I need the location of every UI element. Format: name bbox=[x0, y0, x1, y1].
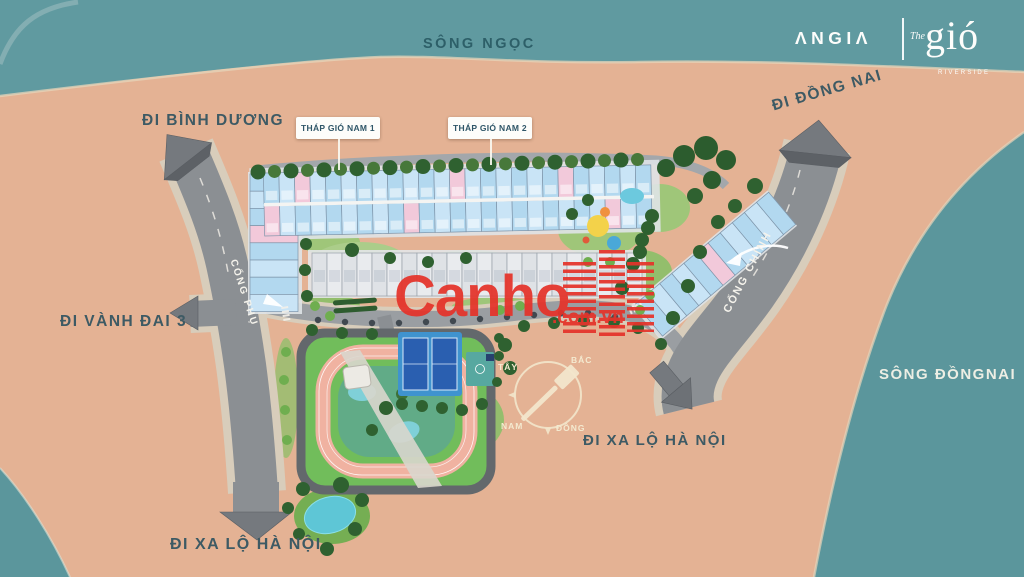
building-unit bbox=[591, 184, 603, 194]
tree bbox=[703, 171, 721, 189]
building-unit bbox=[375, 221, 387, 230]
tree bbox=[301, 290, 313, 302]
building-unit bbox=[359, 189, 371, 199]
tree bbox=[499, 157, 512, 170]
building-unit bbox=[545, 185, 557, 195]
tree bbox=[673, 145, 695, 167]
building-unit bbox=[623, 216, 635, 225]
marker-dot bbox=[315, 317, 321, 323]
tree bbox=[300, 238, 312, 250]
building-unit bbox=[452, 219, 464, 228]
river-right-label: SÔNG ĐỒNGNAI bbox=[879, 366, 1016, 383]
bush bbox=[310, 301, 320, 311]
tree bbox=[598, 154, 611, 167]
building-unit bbox=[576, 217, 588, 226]
tree bbox=[320, 542, 334, 556]
building-unit bbox=[297, 190, 309, 200]
tower-label-nam-2-text: THÁP GIÓ NAM 2 bbox=[453, 123, 527, 133]
building-unit bbox=[499, 218, 511, 227]
building-unit bbox=[359, 270, 370, 282]
tree bbox=[614, 153, 629, 168]
angia-logo-text: ΛNGIΛ bbox=[795, 28, 872, 49]
tree bbox=[515, 156, 530, 171]
tree bbox=[345, 243, 359, 257]
bush bbox=[281, 347, 291, 357]
building-unit bbox=[266, 223, 278, 232]
tree bbox=[296, 482, 310, 496]
building-unit bbox=[421, 220, 433, 229]
building-unit bbox=[390, 221, 402, 230]
building-unit bbox=[312, 190, 324, 200]
building-unit bbox=[498, 186, 510, 196]
site-plan-map: SÔNG NGỌC SÔNG ĐỒNGNAI ĐI BÌNH DƯƠNG ĐI … bbox=[0, 0, 1024, 577]
building-unit bbox=[344, 221, 356, 230]
building-unit bbox=[560, 185, 572, 195]
building-unit bbox=[468, 219, 480, 228]
compass-south: NAM bbox=[501, 421, 523, 431]
tree bbox=[657, 159, 675, 177]
tower-label-leader-1 bbox=[338, 139, 340, 170]
tree bbox=[299, 264, 311, 276]
building-unit bbox=[359, 221, 371, 230]
building-unit bbox=[281, 190, 293, 200]
tree bbox=[301, 164, 314, 177]
building-unit bbox=[483, 219, 495, 228]
building-unit bbox=[344, 270, 355, 282]
building-unit bbox=[452, 187, 464, 197]
building-unit bbox=[250, 260, 298, 277]
tree bbox=[282, 502, 294, 514]
tree bbox=[693, 245, 707, 259]
building-unit bbox=[390, 188, 402, 198]
tree bbox=[641, 221, 655, 235]
building-unit bbox=[530, 218, 542, 227]
tree bbox=[284, 163, 299, 178]
tree bbox=[582, 194, 594, 206]
building-unit bbox=[250, 243, 298, 260]
direction-binh-duong: ĐI BÌNH DƯƠNG bbox=[142, 112, 284, 130]
bush bbox=[282, 435, 292, 445]
building-unit bbox=[467, 186, 479, 196]
building-unit bbox=[545, 217, 557, 226]
building-unit bbox=[328, 189, 340, 199]
tree bbox=[383, 160, 398, 175]
watermark-building-icon bbox=[599, 250, 625, 336]
project-logo-name: gió bbox=[925, 12, 979, 59]
tree bbox=[333, 477, 349, 493]
tree bbox=[268, 165, 281, 178]
building-unit bbox=[406, 220, 418, 229]
bush bbox=[325, 311, 335, 321]
tree bbox=[728, 199, 742, 213]
tower-label-nam-1-text: THÁP GIÓ NAM 1 bbox=[301, 123, 375, 133]
tree bbox=[251, 165, 266, 180]
tree bbox=[456, 404, 468, 416]
tree bbox=[336, 327, 348, 339]
tree bbox=[433, 160, 446, 173]
small-pool bbox=[620, 188, 644, 204]
tree bbox=[476, 398, 488, 410]
tree bbox=[348, 522, 362, 536]
building-unit bbox=[328, 222, 340, 231]
tree bbox=[396, 398, 408, 410]
building-unit bbox=[421, 187, 433, 197]
tree bbox=[334, 163, 347, 176]
tree bbox=[355, 493, 369, 507]
tree bbox=[566, 208, 578, 220]
building-unit bbox=[329, 270, 340, 282]
watermark-name: Canho bbox=[394, 263, 569, 330]
building-unit bbox=[374, 188, 386, 198]
tree bbox=[687, 188, 703, 204]
tree bbox=[367, 162, 380, 175]
tree bbox=[482, 157, 497, 172]
tree bbox=[494, 351, 504, 361]
building-unit bbox=[250, 277, 298, 294]
watermark: Canho .com.vn bbox=[380, 245, 670, 345]
tree bbox=[492, 377, 502, 387]
tower-label-nam-1: THÁP GIÓ NAM 1 bbox=[296, 117, 380, 139]
tree bbox=[716, 150, 736, 170]
compass-north: BẮC bbox=[571, 355, 592, 365]
tree bbox=[532, 156, 545, 169]
tree bbox=[366, 328, 378, 340]
tower-label-nam-2: THÁP GIÓ NAM 2 bbox=[448, 117, 532, 139]
building-unit bbox=[529, 185, 541, 195]
building-unit bbox=[514, 186, 526, 196]
building-unit bbox=[436, 187, 448, 197]
building-unit bbox=[607, 216, 619, 225]
marker-dot bbox=[369, 320, 375, 326]
watermark-building-icon bbox=[627, 262, 654, 332]
building-unit bbox=[343, 189, 355, 199]
direction-xa-lo-ha-noi-east: ĐI XA LỘ HÀ NỘI bbox=[583, 432, 727, 449]
bush bbox=[279, 375, 289, 385]
building-unit bbox=[297, 222, 309, 231]
tree bbox=[306, 324, 318, 336]
tree bbox=[681, 279, 695, 293]
building-unit bbox=[314, 270, 325, 282]
project-logo-subtitle: RIVERSIDE bbox=[938, 70, 990, 76]
tree bbox=[645, 209, 659, 223]
tree bbox=[416, 159, 431, 174]
compass-east: ĐÔNG bbox=[556, 423, 586, 433]
building-unit bbox=[266, 191, 278, 201]
brand-logo: ΛNGIΛ The gió RIVERSIDE bbox=[795, 14, 1010, 74]
tree bbox=[747, 178, 763, 194]
building-unit bbox=[313, 222, 325, 231]
tree bbox=[466, 158, 479, 171]
tree bbox=[317, 162, 332, 177]
building-unit bbox=[282, 223, 294, 232]
tree bbox=[449, 158, 464, 173]
tree bbox=[631, 153, 644, 166]
bush bbox=[280, 405, 290, 415]
direction-xa-lo-ha-noi-south: ĐI XA LỘ HÀ NỘI bbox=[170, 536, 322, 554]
tower-label-leader-2 bbox=[490, 139, 492, 165]
tree bbox=[436, 402, 448, 414]
tree bbox=[548, 155, 563, 170]
building-unit bbox=[405, 188, 417, 198]
logo-divider bbox=[902, 18, 904, 60]
tree bbox=[416, 400, 428, 412]
tree bbox=[565, 155, 578, 168]
compass-west: TÂY bbox=[498, 362, 518, 372]
river-top-label: SÔNG NGỌC bbox=[423, 36, 536, 52]
tree bbox=[350, 161, 365, 176]
tree bbox=[694, 136, 718, 160]
building-unit bbox=[483, 186, 495, 196]
tree bbox=[711, 215, 725, 229]
direction-vanh-dai-3: ĐI VÀNH ĐAI 3 bbox=[60, 313, 187, 331]
building-unit bbox=[576, 184, 588, 194]
project-logo-the: The bbox=[910, 31, 925, 42]
tree bbox=[400, 161, 413, 174]
building-unit bbox=[514, 218, 526, 227]
tree bbox=[581, 154, 596, 169]
marker-dot bbox=[342, 319, 348, 325]
building-unit bbox=[437, 220, 449, 229]
watermark-building-icon bbox=[563, 262, 596, 334]
building-unit bbox=[607, 184, 619, 194]
